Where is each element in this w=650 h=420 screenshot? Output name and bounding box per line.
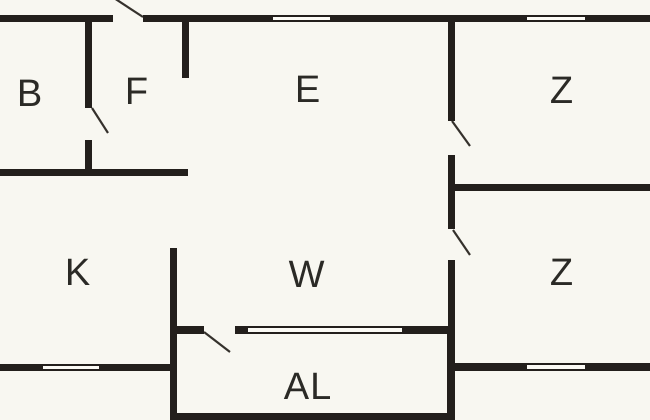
window-e-top xyxy=(273,15,330,22)
window-al-top xyxy=(248,326,402,334)
wall-w-al-wall-left xyxy=(170,326,204,334)
wall-k-bottom-wall-left xyxy=(0,364,43,371)
door-z-upper-swing-line xyxy=(452,121,470,146)
room-z-lower-label: Z xyxy=(550,254,574,292)
door-b-swing-line xyxy=(92,108,108,133)
window-k-bottom xyxy=(43,364,99,371)
wall-z-bottom-wall-right xyxy=(585,363,650,371)
room-w-label: W xyxy=(289,256,326,294)
wall-al-bottom-wall xyxy=(170,413,455,420)
wall-f-e-divider xyxy=(182,22,189,78)
wall-z-bottom-wall-left xyxy=(455,363,527,371)
room-b-label: B xyxy=(17,75,43,113)
wall-top-wall-mid-left xyxy=(143,15,273,22)
room-f-label: F xyxy=(125,73,149,111)
wall-k-bottom-wall-right xyxy=(99,364,177,371)
room-z-upper-label: Z xyxy=(550,72,574,110)
wall-w-al-wall-mid xyxy=(235,326,248,334)
wall-w-z-divider-upper xyxy=(448,191,455,229)
wall-b-f-divider-upper xyxy=(85,22,92,108)
door-al-swing-line xyxy=(204,332,230,352)
wall-al-right-wall xyxy=(447,326,455,420)
door-swing-layer xyxy=(0,0,650,420)
window-z-lower-bottom xyxy=(527,363,585,371)
wall-k-w-al-left-wall xyxy=(170,248,177,420)
wall-top-wall-right xyxy=(585,15,650,22)
wall-w-z-divider-lower xyxy=(448,260,455,334)
room-al-label: AL xyxy=(284,368,332,406)
room-k-label: K xyxy=(65,254,91,292)
window-z-upper-top xyxy=(527,15,585,22)
floor-plan: BFEZKWZAL xyxy=(0,0,650,420)
door-f-exterior-swing-line xyxy=(114,0,143,17)
wall-top-wall-left xyxy=(0,15,113,22)
wall-z-z-divider xyxy=(448,184,650,191)
wall-bf-k-divider xyxy=(0,169,188,176)
wall-top-wall-mid-right xyxy=(330,15,527,22)
room-e-label: E xyxy=(295,71,321,109)
door-z-lower-swing-line xyxy=(453,230,470,255)
wall-e-z-divider-upper xyxy=(448,22,455,121)
